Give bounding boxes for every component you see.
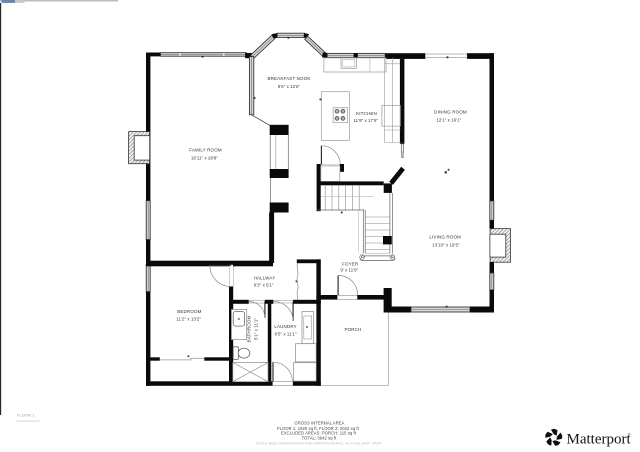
svg-text:6'5" x 11'1": 6'5" x 11'1" (275, 331, 297, 336)
svg-text:FLOOR 1: FLOOR 1 (17, 414, 35, 418)
svg-text:BATHROOM: BATHROOM (246, 315, 251, 342)
svg-text:11'2" x 13'2": 11'2" x 13'2" (176, 316, 201, 321)
svg-text:FOYER: FOYER (342, 262, 359, 267)
svg-text:FAMILY ROOM: FAMILY ROOM (189, 148, 222, 153)
svg-text:11'9" x 17'6": 11'9" x 17'6" (354, 118, 379, 123)
svg-text:SIZES AND DIMENSIONS ARE APPRO: SIZES AND DIMENSIONS ARE APPROXIMATE, AC… (256, 440, 383, 445)
svg-text:DINING ROOM: DINING ROOM (434, 110, 467, 115)
svg-text:BREAKFAST NOOK: BREAKFAST NOOK (267, 76, 310, 81)
svg-text:5'1" x 11'1": 5'1" x 11'1" (254, 318, 259, 340)
svg-text:Matterport: Matterport (567, 432, 632, 448)
svg-text:KITCHEN: KITCHEN (356, 111, 377, 116)
svg-text:PORCH: PORCH (344, 327, 361, 332)
svg-text:HALLWAY: HALLWAY (254, 275, 276, 280)
svg-text:LAUNDRY: LAUNDRY (274, 324, 296, 329)
svg-text:12'1" x 16'1": 12'1" x 16'1" (436, 118, 461, 123)
svg-text:BEDROOM: BEDROOM (177, 309, 201, 314)
svg-text:16'11" x 28'8": 16'11" x 28'8" (191, 155, 218, 160)
svg-text:LIVING ROOM: LIVING ROOM (429, 235, 461, 240)
svg-text:9'3" x 5'1": 9'3" x 5'1" (254, 283, 274, 288)
svg-text:9' x 11'9": 9' x 11'9" (340, 268, 358, 273)
svg-text:8'6" x 12'6": 8'6" x 12'6" (278, 84, 301, 89)
svg-text:13'10" x 19'5": 13'10" x 19'5" (432, 243, 460, 248)
